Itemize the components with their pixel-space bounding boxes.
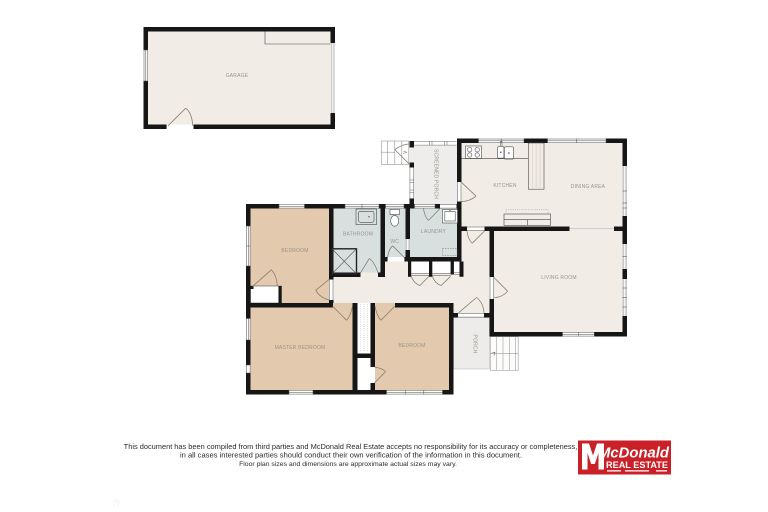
- svg-text:MASTER BEDROOM: MASTER BEDROOM: [275, 345, 326, 351]
- svg-text:SCREENED PORCH: SCREENED PORCH: [433, 149, 439, 199]
- svg-text:LIVING ROOM: LIVING ROOM: [541, 275, 577, 281]
- svg-text:LAUNDRY: LAUNDRY: [421, 229, 447, 235]
- svg-text:DINING AREA: DINING AREA: [571, 184, 606, 190]
- svg-text:BEDROOM: BEDROOM: [398, 343, 425, 349]
- svg-text:BEDROOM: BEDROOM: [281, 248, 308, 254]
- svg-text:BATHROOM: BATHROOM: [343, 232, 373, 238]
- svg-text:WC: WC: [390, 239, 399, 245]
- svg-text:GARAGE: GARAGE: [226, 73, 249, 79]
- svg-text:in all cases interested partie: in all cases interested parties should c…: [180, 451, 522, 460]
- svg-text:REAL ESTATE: REAL ESTATE: [606, 460, 668, 471]
- svg-text:PORCH: PORCH: [472, 334, 478, 353]
- svg-text:(f): (f): [113, 500, 120, 507]
- svg-text:KITCHEN: KITCHEN: [493, 183, 517, 189]
- svg-text:Floor plan sizes and dimension: Floor plan sizes and dimensions are appr…: [239, 461, 457, 468]
